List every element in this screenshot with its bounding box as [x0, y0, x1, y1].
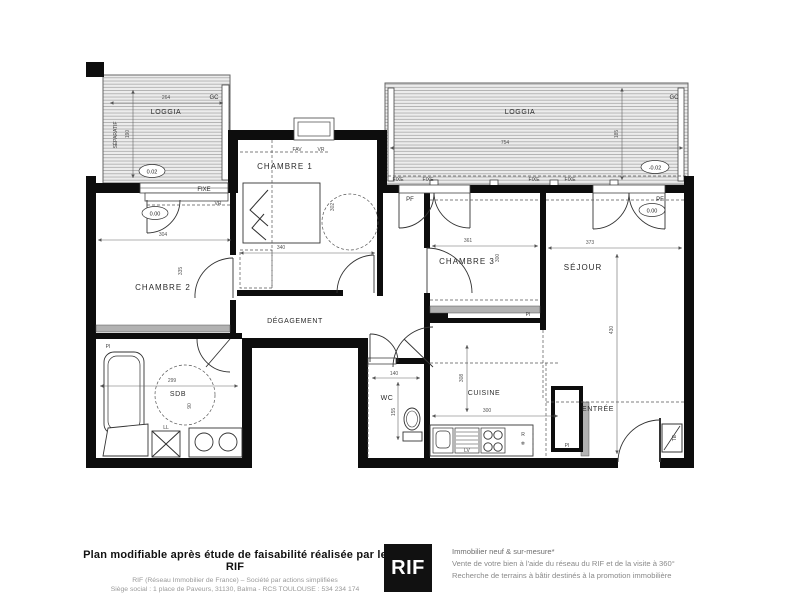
footer-company-line: RIF (Réseau Immobilier de France) – Soci… — [82, 576, 388, 585]
door-chambre3 — [427, 248, 472, 293]
label-pi-chambre2: PI — [106, 344, 111, 350]
wc-door-opening — [368, 358, 396, 364]
label-vr-chambre1: VR — [318, 147, 325, 153]
room-label-wc: WC — [381, 395, 394, 402]
chambre1-wardrobe-dashed — [240, 250, 272, 288]
dim-chambre2-h: 335 — [178, 267, 184, 276]
door-pf-chambre3-right — [434, 193, 470, 228]
footer-service-line-2: Recherche de terrains à bâtir destinés à… — [452, 571, 782, 580]
label-fixe-loggia-2: FIXE — [422, 177, 434, 183]
label-vr-chambre2: VR — [215, 201, 222, 207]
placard-chambre2 — [96, 325, 230, 332]
dim-wc-w: 140 — [390, 371, 399, 377]
door-leaf — [206, 339, 230, 367]
label-fixe-loggia-1: FIXE — [392, 177, 404, 183]
dim-loggia-right-h: 185 — [614, 130, 620, 139]
room-label-loggia-right: LOGGIA — [505, 109, 535, 116]
wall-chambre1-top — [230, 130, 294, 140]
burner — [494, 431, 502, 439]
burner — [484, 431, 492, 439]
bed — [243, 183, 320, 243]
loggia-right-railing-right — [678, 88, 684, 181]
floor-plan-svg: 264 190 754 185 304 335 340 302 361 300 … — [0, 0, 800, 540]
chambre1-turning-circle — [322, 194, 378, 250]
label-r-fridge: R — [521, 432, 525, 438]
wall-chambre2-bottom — [96, 333, 242, 339]
wall-left — [86, 176, 96, 468]
label-ll-washer: LL — [163, 425, 169, 431]
label-gc-right: GC — [670, 95, 680, 101]
placard-chambre3 — [430, 306, 540, 313]
dim-wc-h: 155 — [391, 408, 397, 417]
footer-service-line-1: Vente de votre bien à l'aide du réseau d… — [452, 559, 782, 568]
dim-sdb-w: 299 — [168, 378, 177, 384]
dim-cuisine-h: 308 — [459, 374, 465, 383]
footer-right-block: Immobilier neuf & sur-mesure* Vente de v… — [452, 547, 782, 582]
toilet-tank — [403, 432, 422, 441]
wall-top — [385, 185, 399, 193]
level-loggia-left: 0.02 — [147, 170, 158, 176]
dim-loggia-left-w: 264 — [162, 95, 171, 101]
door-sdb — [197, 339, 230, 372]
sdb-cabinet — [103, 424, 148, 456]
level-chambre2: 0.00 — [150, 212, 161, 218]
kitchen-counter — [430, 425, 533, 456]
level-loggia-right: -0.02 — [649, 166, 662, 172]
footer-tagline: Immobilier neuf & sur-mesure* — [452, 547, 782, 556]
door-chambre1 — [337, 255, 374, 293]
room-label-cuisine: CUISINE — [468, 390, 501, 397]
label-fixe-loggia-3: FIXE — [528, 177, 540, 183]
wall-chambre1-bottom — [237, 290, 343, 296]
label-separatif: SÉPARATIF — [112, 121, 119, 148]
wall-right — [684, 176, 694, 468]
void-wall-top — [242, 338, 368, 348]
wall-top — [470, 185, 593, 193]
wall-chambre2-right — [230, 300, 236, 333]
label-pi-entree: PI — [565, 443, 570, 449]
wall-top — [665, 185, 684, 193]
entrance-door-swing — [618, 420, 660, 462]
wall-sejour-left — [540, 193, 546, 330]
label-pf-sejour: PF — [656, 197, 664, 203]
door-pf-chambre3-frame — [399, 185, 470, 193]
dim-sejour-h: 430 — [609, 326, 615, 335]
wall-bottom-center — [358, 458, 618, 468]
dim-sejour-w: 373 — [586, 240, 595, 246]
wall-chambre3-bottom — [428, 318, 546, 323]
room-label-sejour: SÉJOUR — [564, 263, 602, 272]
dim-sdb-h: 90 — [187, 403, 193, 409]
label-lv-kitchen: LV — [464, 448, 470, 454]
room-label-entree: ENTRÉE — [582, 404, 614, 413]
entree-closet — [553, 388, 581, 450]
wall-wc-right — [424, 363, 430, 458]
rif-logo: RIF — [384, 544, 432, 592]
loggia-areas — [103, 75, 688, 187]
dim-chambre3-h: 300 — [495, 254, 501, 263]
bathtub — [104, 352, 144, 434]
footer-title: Plan modifiable après étude de faisabili… — [82, 549, 388, 573]
loggia-left-railing — [222, 85, 229, 180]
dim-chambre1-w: 340 — [277, 245, 286, 251]
level-sejour: 0.00 — [647, 209, 658, 215]
room-label-sdb: SDB — [170, 391, 186, 398]
void-wall-right — [358, 338, 368, 468]
room-label-chambre3: CHAMBRE 3 — [439, 257, 495, 266]
entrance-opening — [618, 458, 660, 468]
room-label-chambre2: CHAMBRE 2 — [135, 283, 191, 292]
wall-top-left-stub — [86, 62, 104, 77]
sink-left — [195, 433, 213, 451]
label-pf-chambre3: PF — [406, 197, 414, 203]
footer-left-block: Plan modifiable après étude de faisabili… — [82, 549, 388, 594]
dim-cuisine-w: 300 — [483, 408, 492, 414]
wall-kitchen-left-upper — [424, 323, 430, 363]
loggia-right-railing-left — [388, 88, 394, 181]
burner — [494, 443, 502, 451]
label-pi-chambre3: PI — [526, 312, 531, 318]
label-gc-left: GC — [210, 95, 220, 101]
room-label-chambre1: CHAMBRE 1 — [257, 162, 313, 171]
footer-address-line: Siège social : 1 place de Paveurs, 31130… — [82, 585, 388, 594]
wall-top — [96, 183, 140, 193]
label-fixe-chambre2: FIXE — [197, 187, 210, 193]
dim-chambre1-h: 302 — [330, 203, 336, 212]
wall-bottom-left — [86, 458, 252, 468]
door-pf-sejour-left — [593, 193, 629, 229]
window-vr-chambre2 — [145, 193, 228, 201]
label-fixe-loggia-4: FIXE — [564, 177, 576, 183]
window-chambre1 — [294, 118, 334, 140]
dim-loggia-left-h: 190 — [125, 130, 131, 139]
wall-chambre3-left — [424, 193, 430, 248]
void-wall-left — [242, 338, 252, 468]
fridge-snowflake-icon: ❄ — [521, 441, 525, 447]
room-label-loggia-left: LOGGIA — [151, 109, 181, 116]
loggia-left-area — [103, 75, 230, 183]
label-te-entree: TE — [672, 434, 678, 441]
dim-chambre2-w: 304 — [159, 232, 168, 238]
dim-loggia-right-w: 754 — [501, 140, 510, 146]
label-fav-chambre1: FAV — [292, 147, 302, 153]
room-label-degagement: DÉGAGEMENT — [267, 316, 323, 325]
door-chambre2 — [195, 258, 233, 298]
dim-chambre3-w: 361 — [464, 238, 473, 244]
sink-right — [219, 433, 237, 451]
door-pf-sejour-frame — [593, 185, 665, 193]
burner — [484, 443, 492, 451]
wall-chambre2-right — [230, 193, 236, 255]
